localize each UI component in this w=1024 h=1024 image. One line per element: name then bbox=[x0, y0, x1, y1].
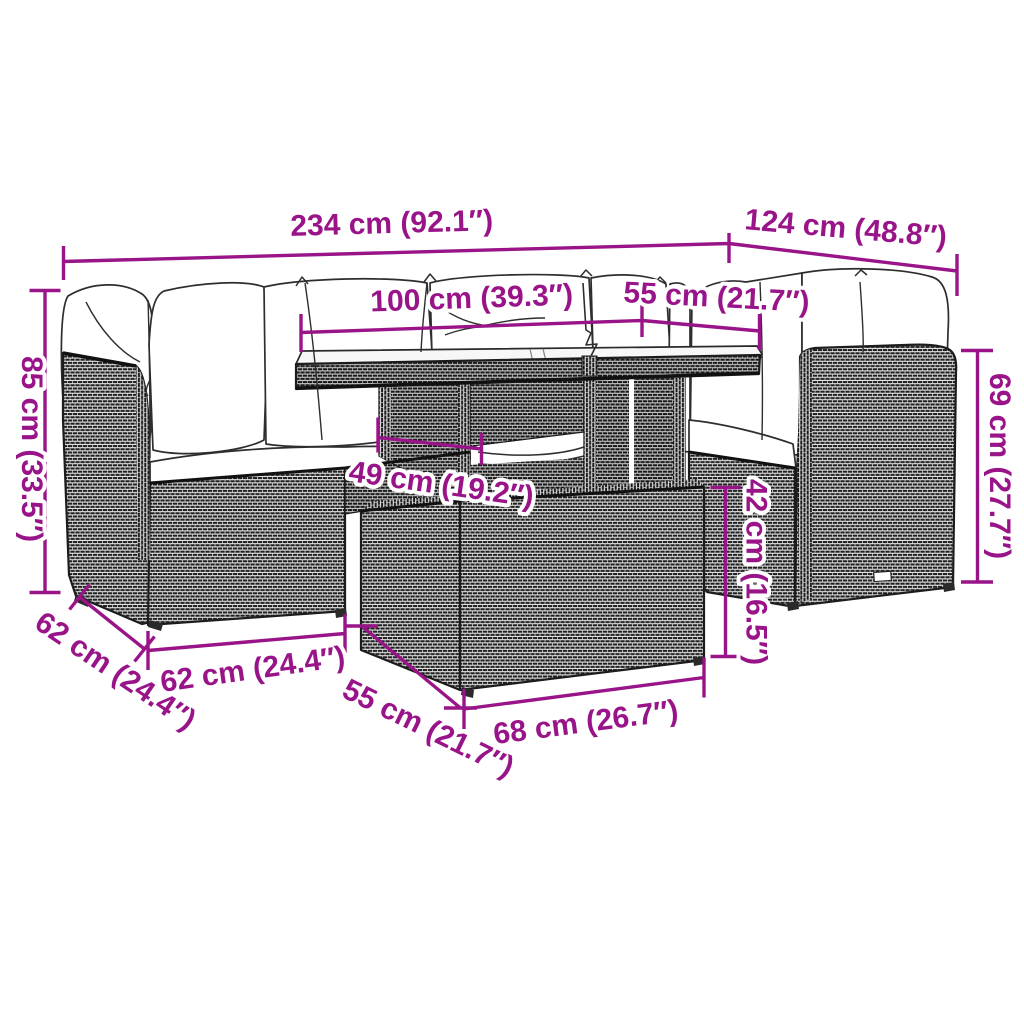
svg-text:85 cm (33.5″): 85 cm (33.5″) bbox=[15, 356, 48, 542]
svg-text:69 cm (27.7″): 69 cm (27.7″) bbox=[983, 373, 1016, 559]
svg-text:234 cm (92.1″): 234 cm (92.1″) bbox=[290, 204, 494, 243]
svg-text:42 cm (16.5″): 42 cm (16.5″) bbox=[740, 479, 773, 665]
